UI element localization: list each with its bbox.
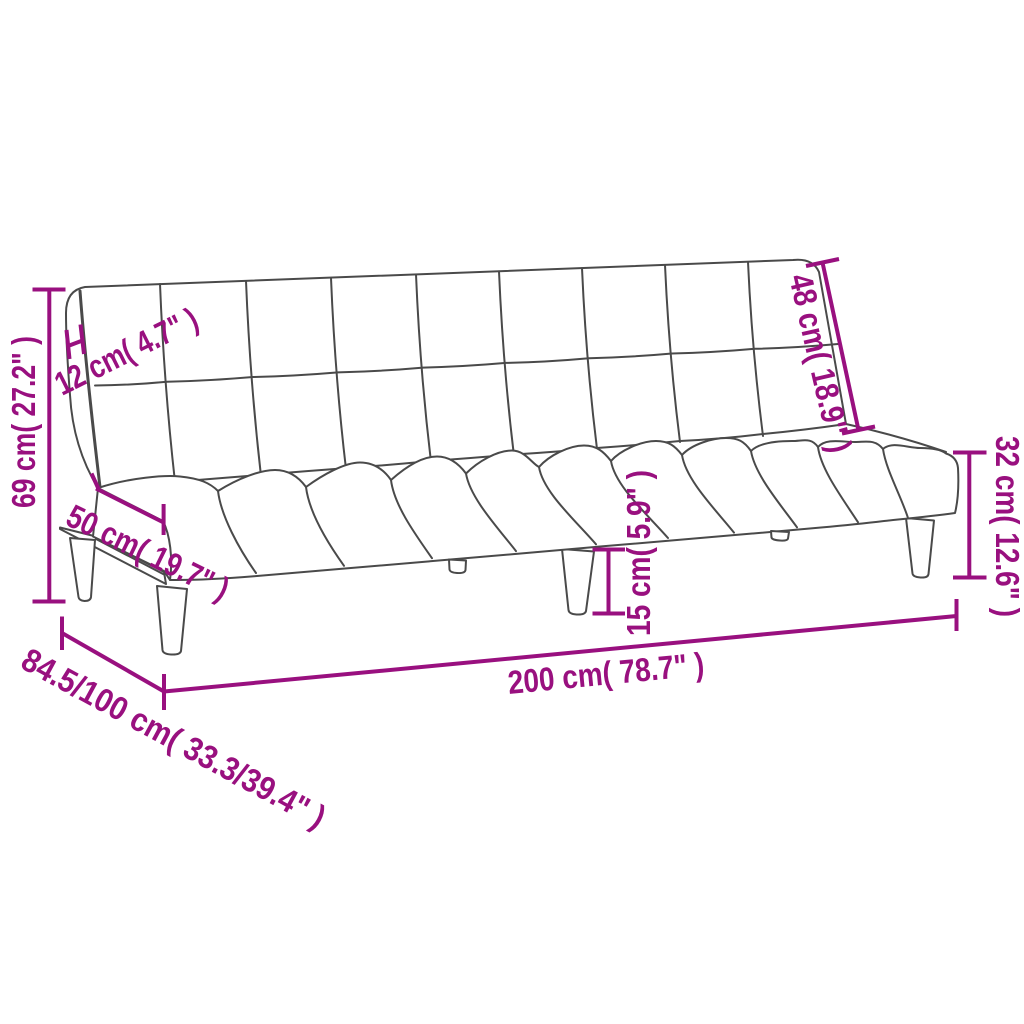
svg-text:32 cm( 12.6" ): 32 cm( 12.6" ) [989, 436, 1024, 617]
svg-text:15 cm( 5.9" ): 15 cm( 5.9" ) [620, 470, 657, 636]
svg-text:69 cm( 27.2" ): 69 cm( 27.2" ) [5, 336, 42, 508]
